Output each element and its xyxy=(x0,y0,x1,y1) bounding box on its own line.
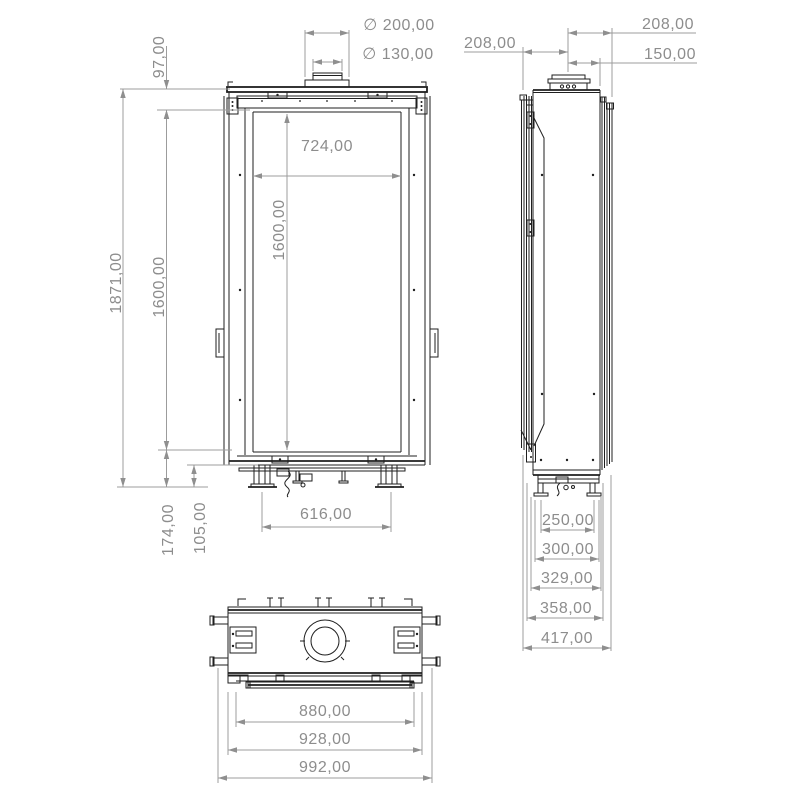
dim-label-side-foot-spacing: 250,00 xyxy=(542,512,594,529)
side-handle-left xyxy=(216,329,224,357)
top-mount-pins xyxy=(267,598,385,607)
dim-label-top-section: 97,00 xyxy=(151,36,168,79)
dim-label-flue-outer: ∅ 200,00 xyxy=(363,17,434,34)
side-body xyxy=(533,90,600,475)
mount-brackets xyxy=(230,627,420,653)
dim-label-overall-depth: 417,00 xyxy=(541,630,593,647)
side-flue-collar xyxy=(548,75,590,90)
dim-label-foot-spacing: 616,00 xyxy=(300,506,352,523)
dim-label-overall-height: 1871,00 xyxy=(108,252,125,313)
dim-label-depth-358: 358,00 xyxy=(540,600,592,617)
dim-label-frame-width: 928,00 xyxy=(299,731,351,748)
bottom-view xyxy=(210,598,440,688)
dim-label-base-section: 174,00 xyxy=(160,504,177,556)
top-frame xyxy=(227,82,427,114)
back-rails xyxy=(601,97,614,470)
dim-label-flue-inner: ∅ 130,00 xyxy=(362,46,433,63)
side-handle-right xyxy=(430,329,438,357)
dim-label-depth-300: 300,00 xyxy=(542,541,594,558)
side-base-and-feet xyxy=(534,475,601,496)
dim-label-depth-329: 329,00 xyxy=(541,570,593,587)
base-and-feet xyxy=(229,452,425,497)
flue-collar xyxy=(305,73,349,87)
dim-label-glass-width: 724,00 xyxy=(301,138,353,155)
side-view xyxy=(520,75,614,496)
dim-label-foot-height: 105,00 xyxy=(192,502,209,554)
fireplace-dimension-drawing: ∅ 200,00 ∅ 130,00 97,00 1871,00 1600,00 … xyxy=(0,0,800,800)
dim-label-inner-width: 880,00 xyxy=(299,703,351,720)
dim-label-flue-to-body: 150,00 xyxy=(644,46,696,63)
side-view-dimensions: 208,00 208,00 150,00 250,00 300,00 329,0… xyxy=(464,16,697,651)
technical-drawing-page: ∅ 200,00 ∅ 130,00 97,00 1871,00 1600,00 … xyxy=(0,0,800,800)
front-view xyxy=(216,73,438,497)
dim-label-glass-height: 1600,00 xyxy=(151,256,168,317)
dim-label-glass-height-inner: 1600,00 xyxy=(271,199,288,260)
dim-label-overall-width: 992,00 xyxy=(299,759,351,776)
dim-label-flue-to-back: 208,00 xyxy=(642,16,694,33)
flue-opening xyxy=(300,620,350,662)
dim-label-flue-to-front: 208,00 xyxy=(464,35,516,52)
front-frame-edge xyxy=(228,673,422,688)
side-mount-pins xyxy=(210,616,440,666)
